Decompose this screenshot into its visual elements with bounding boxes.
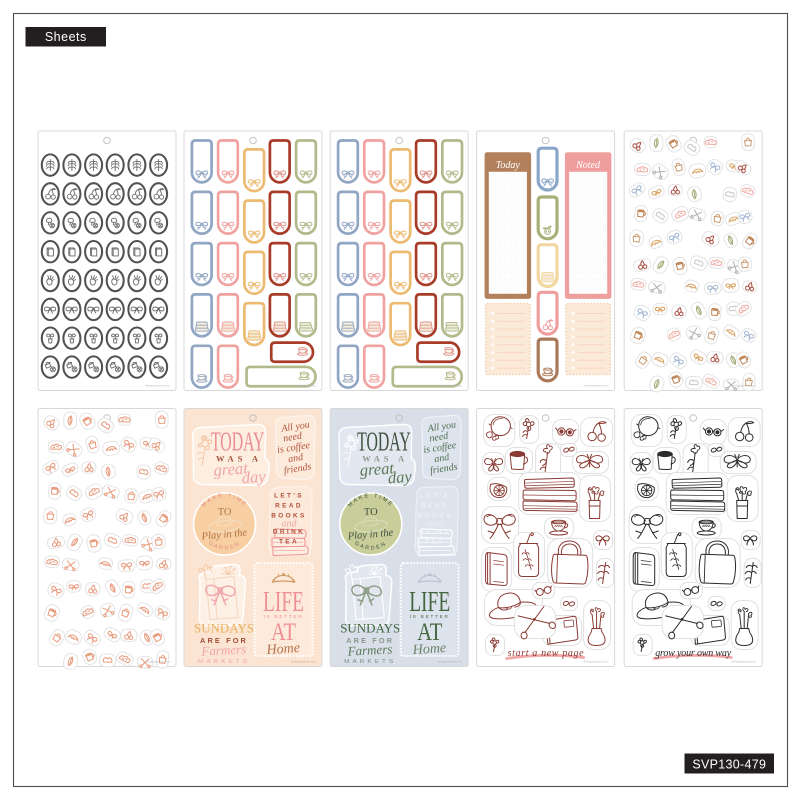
svg-text:SUNDAYS: SUNDAYS xyxy=(340,621,400,636)
svg-text:Farmers: Farmers xyxy=(346,641,393,658)
svg-text:LET'S: LET'S xyxy=(274,493,304,500)
svg-text:and: and xyxy=(428,519,444,530)
svg-text:thehappyplanner.com: thehappyplanner.com xyxy=(731,384,756,388)
svg-text:SVP130-479: SVP130-479 xyxy=(692,757,766,771)
svg-text:TODAY: TODAY xyxy=(357,427,411,457)
svg-text:LET'S: LET'S xyxy=(420,493,450,500)
svg-text:thehappyplanner.com: thehappyplanner.com xyxy=(145,384,170,388)
svg-text:thehappyplanner.com: thehappyplanner.com xyxy=(291,660,316,664)
svg-text:TEA: TEA xyxy=(425,539,445,546)
svg-text:MARKETS: MARKETS xyxy=(198,659,250,665)
svg-text:Farmers: Farmers xyxy=(200,641,247,658)
svg-text:thehappyplanner.com: thehappyplanner.com xyxy=(584,384,609,388)
svg-text:READ: READ xyxy=(421,503,449,510)
svg-text:and: and xyxy=(282,519,298,530)
svg-text:grow your own way: grow your own way xyxy=(655,648,732,659)
svg-text:thehappyplanner.com: thehappyplanner.com xyxy=(291,384,316,388)
svg-text:TO: TO xyxy=(364,507,378,518)
svg-text:start a new page: start a new page xyxy=(508,648,585,659)
svg-text:Noted: Noted xyxy=(575,160,601,171)
svg-text:DRINK: DRINK xyxy=(419,529,451,536)
svg-text:Sheets: Sheets xyxy=(45,30,87,44)
svg-text:TODAY: TODAY xyxy=(211,427,265,457)
svg-text:thehappyplanner.com: thehappyplanner.com xyxy=(437,660,462,664)
svg-text:TO: TO xyxy=(218,507,232,518)
svg-text:day: day xyxy=(387,467,413,488)
svg-text:thehappyplanner.com: thehappyplanner.com xyxy=(731,660,756,664)
svg-text:day: day xyxy=(241,467,267,488)
svg-text:READ: READ xyxy=(275,503,303,510)
svg-text:DRINK: DRINK xyxy=(273,529,305,536)
svg-text:thehappyplanner.com: thehappyplanner.com xyxy=(437,384,462,388)
svg-text:TEA: TEA xyxy=(279,539,299,546)
svg-text:MARKETS: MARKETS xyxy=(344,659,396,665)
svg-text:thehappyplanner.com: thehappyplanner.com xyxy=(584,660,609,664)
svg-text:SUNDAYS: SUNDAYS xyxy=(194,621,254,636)
svg-text:Today: Today xyxy=(496,160,521,171)
svg-text:Home: Home xyxy=(265,641,300,658)
svg-text:thehappyplanner.com: thehappyplanner.com xyxy=(145,660,170,664)
svg-text:Home: Home xyxy=(411,641,446,658)
